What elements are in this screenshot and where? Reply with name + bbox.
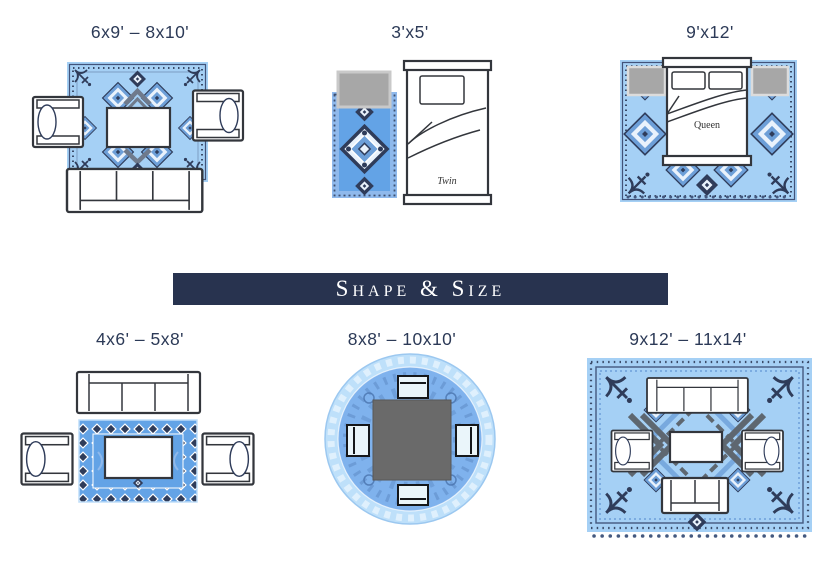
size-label: 3'x5' [320,22,500,43]
nightstand-right [752,67,788,95]
armchair-right [742,431,783,472]
chair-right [456,425,478,456]
sofa [77,372,200,413]
size-label: 8x8' – 10x10' [312,329,492,350]
coffee-table [107,108,170,147]
nightstand-left [628,67,665,95]
armchair-left [612,431,653,472]
chair-left [347,425,369,456]
armchair-left [22,434,73,485]
coffee-table [105,437,172,478]
bench [338,72,390,107]
panel-living-room-medium [25,46,265,221]
size-label: 6x9' – 8x10' [25,22,255,43]
size-label: 9'x12' [595,22,825,43]
dining-table [373,400,451,480]
sofa [67,169,202,212]
armchair-left [33,97,83,147]
panel-queen-bedroom: Queen [595,46,825,221]
panel-living-room-large [580,352,820,542]
armchair-right [203,434,254,485]
sofa [647,378,748,413]
loveseat [662,478,728,513]
chair-top [398,376,428,398]
panel-twin-bedroom: Twin [320,46,500,221]
banner-title: Shape & Size [336,273,506,305]
chair-bottom [398,485,428,505]
bed-size-label: Queen [694,120,720,131]
bed-size-label: Twin [437,176,456,187]
section-banner: Shape & Size [173,273,668,305]
armchair-right [193,91,243,141]
panel-living-room-small [20,352,260,522]
coffee-table [670,432,722,462]
queen-bed: Queen [663,58,751,165]
twin-bed: Twin [404,61,491,204]
size-label: 4x6' – 5x8' [20,329,260,350]
size-label: 9x12' – 11x14' [568,329,808,350]
rug-size-guide: 6x9' – 8x10' 3'x5' 9'x12' 4x6' – 5x8' 8x… [0,0,840,580]
panel-dining-round [320,352,500,527]
